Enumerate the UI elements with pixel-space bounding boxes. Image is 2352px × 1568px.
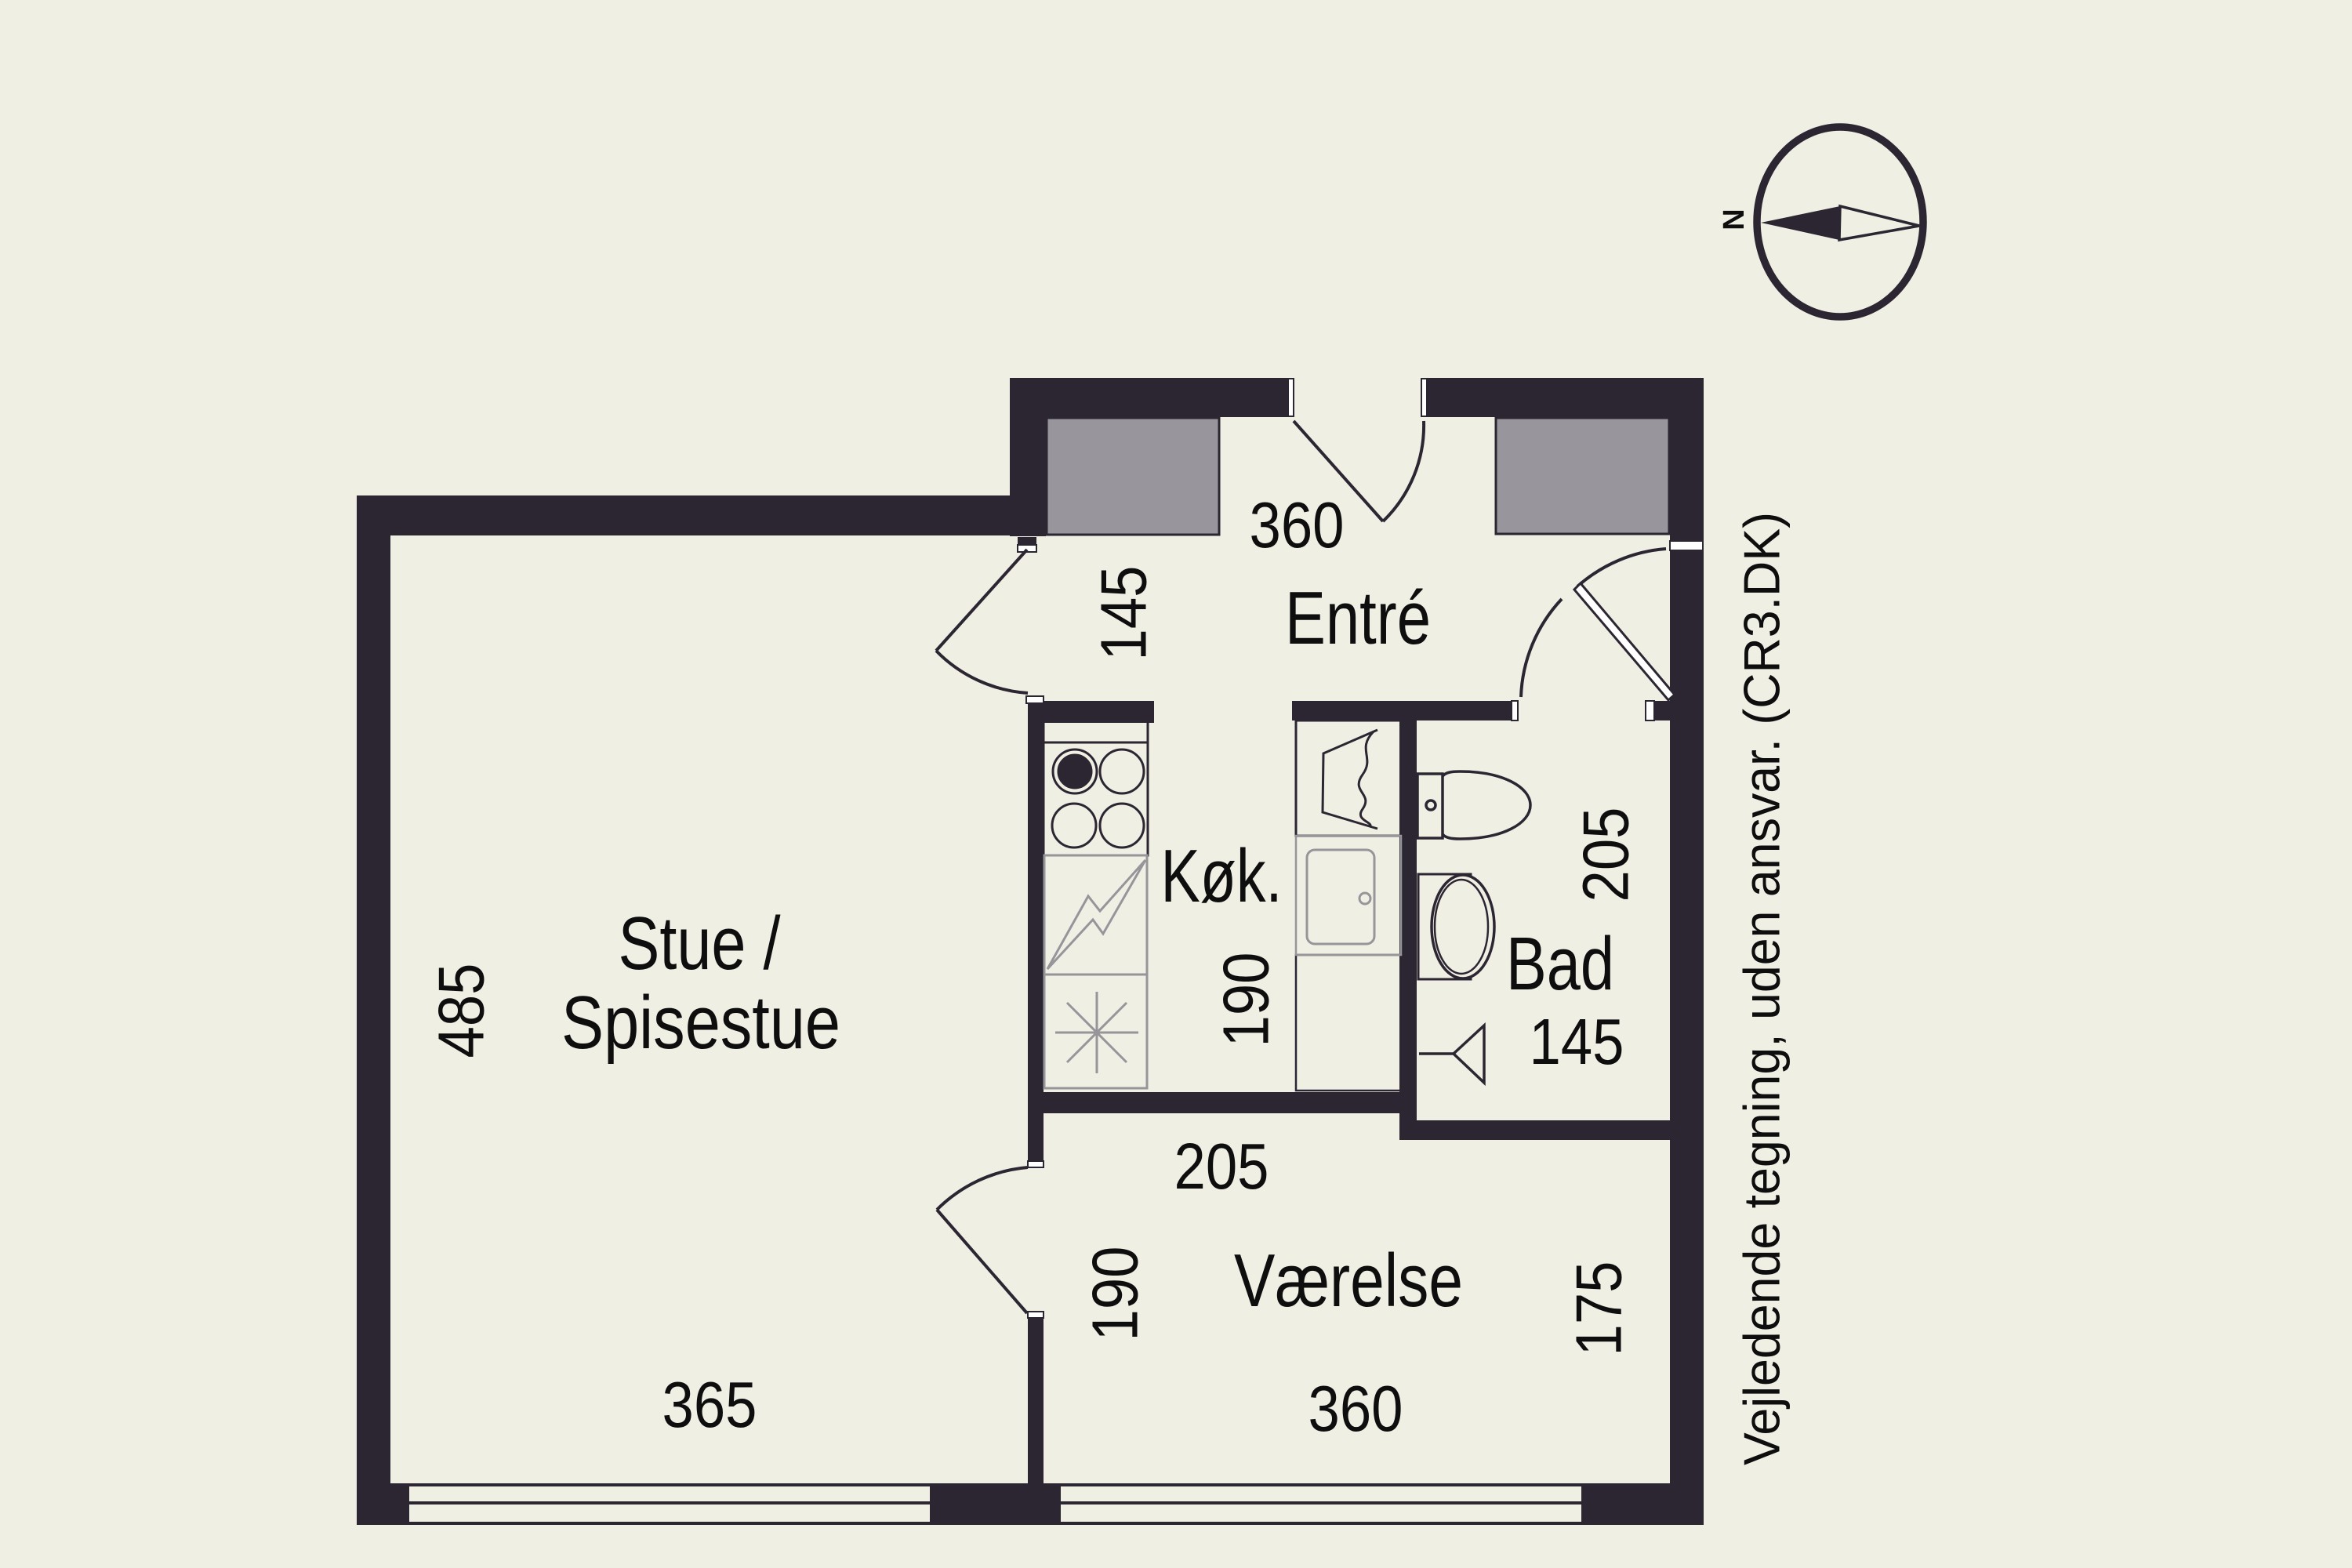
svg-text:Spisestue: Spisestue — [561, 981, 840, 1065]
svg-text:145: 145 — [1530, 1005, 1624, 1078]
svg-text:Værelse: Værelse — [1234, 1239, 1463, 1323]
svg-text:205: 205 — [1570, 808, 1642, 902]
svg-text:485: 485 — [425, 964, 498, 1058]
svg-text:190: 190 — [1079, 1247, 1152, 1341]
svg-text:365: 365 — [662, 1368, 757, 1441]
svg-text:190: 190 — [1210, 953, 1283, 1047]
svg-text:360: 360 — [1308, 1372, 1403, 1445]
svg-text:175: 175 — [1563, 1261, 1635, 1356]
svg-text:Entré: Entré — [1285, 576, 1431, 660]
svg-text:Køk.: Køk. — [1161, 834, 1283, 918]
svg-text:145: 145 — [1087, 566, 1160, 661]
svg-text:360: 360 — [1250, 488, 1345, 561]
svg-text:Vejledende tegning, uden ansva: Vejledende tegning, uden ansvar. (CR3.DK… — [1733, 512, 1791, 1465]
svg-text:N: N — [1718, 209, 1751, 230]
svg-text:205: 205 — [1174, 1130, 1269, 1203]
svg-text:Bad: Bad — [1506, 922, 1614, 1006]
svg-text:Stue /: Stue / — [619, 902, 781, 985]
